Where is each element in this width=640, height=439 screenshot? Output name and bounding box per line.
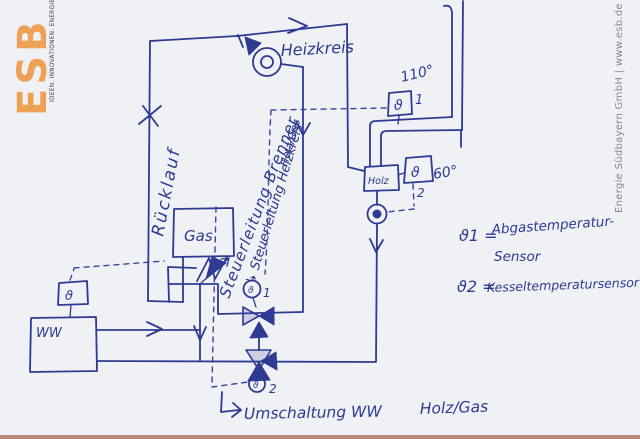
theta-mark-boiler: ϑ [411,165,420,181]
esb-tagline-text: IDEEN. INNOVATIONEN. ENERGIE. [50,0,56,102]
wood-boiler-label: Holz [368,176,390,187]
scan-edge [0,435,640,439]
esb-logo: ESB IDEEN. INNOVATIONEN. ENERGIE. [10,0,56,116]
flue-sensor-number: 1 [415,93,423,108]
theta-mark-actuator1: ϑ [248,286,254,296]
pipe-return-bottom [148,301,183,302]
gas-boiler-label: Gas [184,227,213,245]
theta-mark-actuator2: ϑ [253,381,259,391]
theta-mark-flue: ϑ [394,98,403,114]
water-tank-label: WW [36,326,63,341]
valve2-number: 2 [269,382,277,396]
boiler-sensor-number: 2 [417,186,425,200]
legend-sensor1-text2: Sensor [494,249,542,265]
valve1-number: 1 [263,286,271,300]
switchover-note-part1: Umschaltung WW [244,403,383,423]
heating-circuit-label: Heizkreis [280,37,354,60]
heating-schematic-svg: ESB IDEEN. INNOVATIONEN. ENERGIE. Energi… [0,0,640,439]
pipe-wood-down-b [376,224,377,361]
theta-mark-ww: ϑ [65,289,73,304]
scanned-sketch-page: ESB IDEEN. INNOVATIONEN. ENERGIE. Energi… [0,0,640,439]
publisher-credit-text: Energie Südbayern GmbH | www.esb.de [614,3,625,213]
switchover-note-part2: Holz/Gas [420,398,489,418]
pipe-bottom-main [97,361,376,362]
pump-icon-wood-inner [373,210,381,218]
